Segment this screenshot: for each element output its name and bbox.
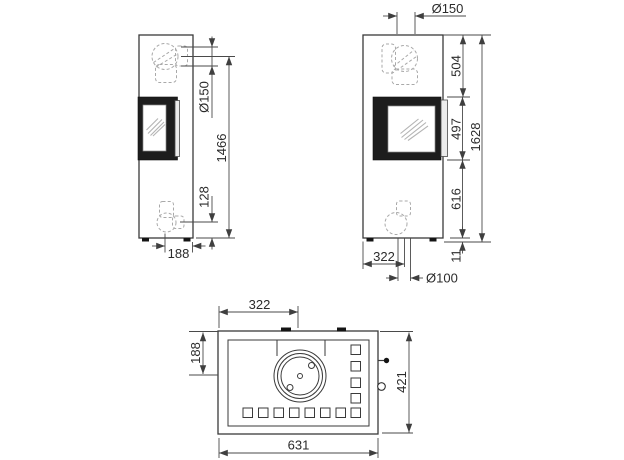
vent-square	[351, 408, 361, 418]
extension-lines	[189, 306, 413, 458]
bottom-elbow-circle	[157, 213, 176, 232]
flue-collar-outer	[274, 350, 326, 402]
top-side-fittings	[378, 358, 389, 391]
side-foot-rear	[184, 238, 191, 242]
flue-elbow-seams	[394, 50, 417, 71]
vent-square	[321, 408, 331, 418]
flue-elbow-side-stub	[382, 44, 396, 73]
bottom-elbow-circle	[385, 213, 407, 235]
flue-collar-mid	[278, 354, 323, 399]
dim-top-depth: 421	[394, 371, 409, 393]
front-foot-left	[367, 238, 374, 242]
dim-front-door-height: 497	[449, 118, 464, 140]
front-bottom-flue-elbow-hidden	[385, 201, 411, 235]
vent-square	[274, 408, 284, 418]
technical-drawing: Ø150 1466 128 188	[0, 0, 624, 460]
vent-square	[243, 408, 253, 418]
dim-top-flue-offset-x: 322	[249, 297, 271, 312]
top-view	[218, 328, 389, 435]
front-top-flue-elbow-hidden	[382, 44, 418, 85]
vent-square	[351, 378, 361, 388]
front-door	[373, 97, 448, 160]
bottom-elbow-pipe	[397, 201, 411, 216]
dim-front-base-height: 11	[449, 249, 464, 263]
dim-front-total-height: 1628	[468, 123, 483, 152]
vent-square	[351, 345, 361, 355]
dim-front-outlet-offset: 322	[373, 249, 395, 264]
flue-elbow-rear-stub	[176, 46, 188, 66]
front-view	[363, 35, 448, 281]
dim-side-outlet-depth: 188	[168, 246, 190, 261]
handle-pin-head	[384, 358, 389, 363]
vent-square	[259, 408, 269, 418]
bottom-elbow-pipe	[160, 202, 174, 218]
drawing-svg: Ø150 1466 128 188	[0, 0, 624, 460]
dim-side-outlet-height: 128	[197, 186, 212, 208]
dim-front-top-flue-diameter: Ø150	[432, 1, 464, 16]
bottom-outlet-stub-lines	[398, 238, 411, 281]
front-door-hinge-strip	[441, 100, 448, 157]
vent-square	[305, 408, 315, 418]
top-flue-collar	[274, 350, 326, 402]
flue-elbow-body	[392, 69, 418, 85]
flue-elbow-body	[156, 65, 177, 83]
top-body-outline	[218, 331, 378, 434]
dim-front-top-section: 504	[449, 55, 464, 77]
handle-ring	[378, 383, 386, 391]
vent-square	[290, 408, 300, 418]
side-foot-front	[142, 238, 149, 242]
top-vent-squares	[243, 345, 361, 418]
vent-square	[351, 362, 361, 372]
dim-front-lower-section: 616	[449, 188, 464, 210]
dim-top-flue-offset-depth: 188	[188, 342, 203, 364]
rear-spacer-left	[281, 328, 291, 332]
rear-spacer-right	[337, 328, 346, 332]
side-door-glass	[143, 105, 166, 151]
side-bottom-flue-elbow-hidden	[157, 202, 184, 233]
dim-front-bottom-flue-diameter: Ø100	[426, 271, 458, 286]
side-door	[138, 97, 180, 160]
side-door-edge-strip	[175, 101, 180, 157]
dim-side-flue-diameter: Ø150	[197, 81, 212, 113]
dim-top-width: 631	[288, 438, 310, 453]
flue-screw-upper	[309, 363, 315, 369]
side-top-flue-elbow-hidden	[152, 44, 188, 83]
dim-side-flue-height: 1466	[214, 134, 229, 163]
flue-center-mark	[298, 374, 303, 379]
flue-screw-lower	[287, 385, 293, 391]
vent-square	[351, 394, 361, 404]
vent-square	[336, 408, 346, 418]
front-foot-right	[430, 238, 437, 242]
